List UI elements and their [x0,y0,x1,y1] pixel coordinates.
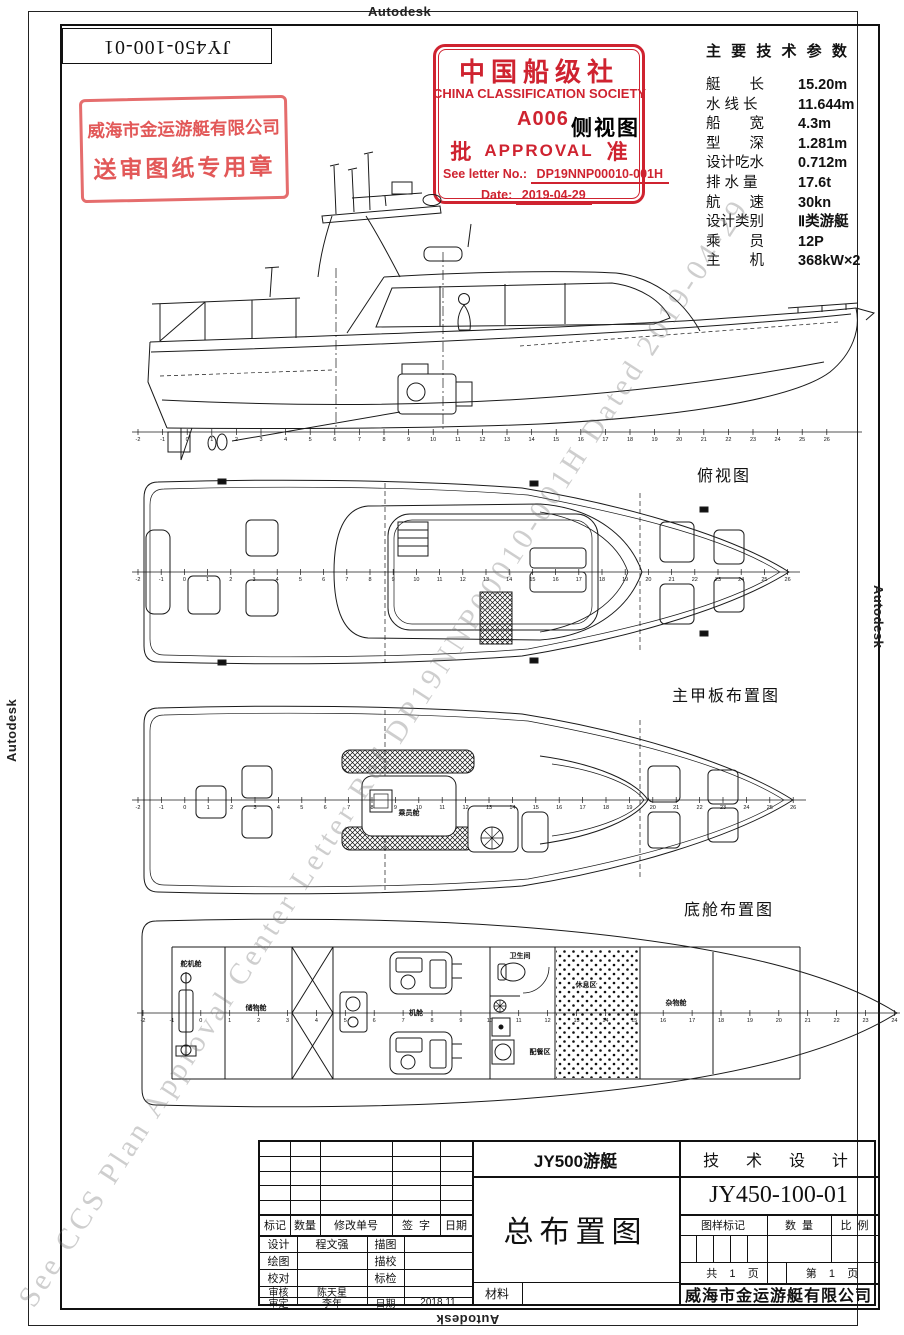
svg-text:11: 11 [455,437,461,443]
svg-text:13: 13 [483,577,489,583]
svg-text:3: 3 [286,1018,289,1024]
role-trace-check: 描校 [367,1252,404,1269]
svg-text:6: 6 [322,577,325,583]
trace-check-name [404,1252,472,1269]
trace-name [404,1235,472,1252]
svg-text:-1: -1 [169,1018,174,1024]
svg-text:19: 19 [747,1018,753,1024]
svg-text:11: 11 [516,1018,522,1024]
svg-text:13: 13 [504,437,510,443]
bilge-station-ruler: -2-1012345678910111213141516171819202122… [137,1010,900,1024]
svg-text:10: 10 [413,577,419,583]
svg-text:6: 6 [324,805,327,811]
svg-text:15: 15 [533,805,539,811]
svg-text:3: 3 [252,577,255,583]
svg-text:9: 9 [394,805,397,811]
svg-text:15: 15 [553,437,559,443]
svg-text:7: 7 [402,1018,405,1024]
svg-text:10: 10 [430,437,436,443]
svg-text:24: 24 [743,805,749,811]
svg-text:11: 11 [437,577,443,583]
qty-col-header: 数 量 [767,1214,831,1235]
svg-text:17: 17 [576,577,582,583]
svg-text:25: 25 [767,805,773,811]
svg-text:-2: -2 [136,577,141,583]
svg-text:3: 3 [253,805,256,811]
svg-text:15: 15 [529,577,535,583]
project-name: JY500游艇 [472,1142,679,1176]
svg-text:12: 12 [545,1018,551,1024]
drawing-sheet: Autodesk Autodesk Autodesk Autodesk JY45… [0,0,904,1335]
svg-text:17: 17 [602,437,608,443]
svg-text:3: 3 [259,437,262,443]
svg-text:14: 14 [509,805,515,811]
role-design: 设计 [260,1235,297,1252]
svg-text:11: 11 [439,805,445,811]
drawing-title: 总布置图 [472,1176,679,1282]
svg-text:7: 7 [358,437,361,443]
top-view-drawing: -2-1012345678910111213141516171819202122… [132,479,800,665]
bilge-storage-label: 储物舱 [245,1003,268,1012]
svg-text:8: 8 [382,437,385,443]
svg-text:5: 5 [300,805,303,811]
svg-text:14: 14 [506,577,512,583]
svg-text:-2: -2 [136,437,141,443]
svg-text:25: 25 [799,437,805,443]
svg-text:16: 16 [578,437,584,443]
svg-text:7: 7 [347,805,350,811]
proofread-name [297,1269,367,1286]
svg-text:23: 23 [715,577,721,583]
svg-text:10: 10 [416,805,422,811]
svg-text:8: 8 [430,1018,433,1024]
svg-text:4: 4 [284,437,287,443]
svg-text:7: 7 [345,577,348,583]
svg-text:14: 14 [602,1018,608,1024]
svg-text:14: 14 [529,437,535,443]
svg-text:19: 19 [652,437,658,443]
svg-text:24: 24 [738,577,744,583]
svg-text:24: 24 [775,437,781,443]
designer-name: 程文强 [297,1235,367,1252]
bilge-view-drawing: 舵机舱 储物舱 机舱 卫生间 休息区 配餐区 杂物舱 -2-1012345678… [137,919,900,1107]
design-stage: 技 术 设 计 [679,1142,878,1176]
svg-text:26: 26 [785,577,791,583]
draw-name [297,1252,367,1269]
svg-text:9: 9 [407,437,410,443]
svg-text:22: 22 [834,1018,840,1024]
mark-col-header: 图样标记 [679,1214,767,1235]
company-name: 威海市金运游艇有限公司 [679,1283,878,1304]
standard-check-name [404,1269,472,1286]
svg-text:17: 17 [689,1018,695,1024]
svg-text:2: 2 [257,1018,260,1024]
svg-text:16: 16 [556,805,562,811]
svg-text:21: 21 [701,437,707,443]
svg-text:19: 19 [622,577,628,583]
svg-text:18: 18 [599,577,605,583]
svg-text:0: 0 [199,1018,202,1024]
date-label: 日期 [367,1297,404,1308]
svg-text:8: 8 [368,577,371,583]
svg-text:21: 21 [673,805,679,811]
svg-text:20: 20 [776,1018,782,1024]
role-trace: 描图 [367,1235,404,1252]
svg-text:9: 9 [459,1018,462,1024]
svg-text:15: 15 [631,1018,637,1024]
material-label: 材料 [472,1282,522,1304]
svg-text:0: 0 [183,577,186,583]
svg-text:17: 17 [580,805,586,811]
svg-text:0: 0 [183,805,186,811]
svg-text:23: 23 [862,1018,868,1024]
svg-text:4: 4 [315,1018,318,1024]
top-view-station-ruler: -2-1012345678910111213141516171819202122… [132,569,800,583]
svg-text:18: 18 [718,1018,724,1024]
svg-text:-1: -1 [159,805,164,811]
bilge-misc-label: 杂物舱 [666,998,688,1007]
svg-text:4: 4 [277,805,280,811]
svg-text:22: 22 [697,805,703,811]
bilge-engine-room-label: 机舱 [409,1008,424,1017]
rev-col-mark: 标记 [260,1214,290,1235]
page-number: 第 1 页 [786,1262,878,1283]
title-block: 标记 数量 修改单号 签 字 日期 设计 程文强 描图 绘图 描校 校对 标检 … [258,1140,876,1306]
svg-text:6: 6 [333,437,336,443]
svg-text:5: 5 [299,577,302,583]
svg-text:10: 10 [487,1018,493,1024]
svg-text:16: 16 [660,1018,666,1024]
svg-text:16: 16 [553,577,559,583]
approver-name: 李年 [297,1297,367,1308]
svg-text:18: 18 [627,437,633,443]
svg-text:21: 21 [805,1018,811,1024]
svg-text:4: 4 [276,577,279,583]
svg-text:24: 24 [891,1018,897,1024]
svg-text:20: 20 [645,577,651,583]
svg-text:26: 26 [790,805,796,811]
svg-text:9: 9 [392,577,395,583]
main-deck-drawing: 乘员舱 -2-101234567891011121314151617181920… [132,706,806,894]
reviewer-name: 陈天星 [297,1286,367,1297]
role-standard-check: 标检 [367,1269,404,1286]
drawing-number: JY450-100-01 [679,1176,878,1214]
svg-text:21: 21 [669,577,675,583]
rev-col-date: 日期 [440,1214,472,1235]
side-view-drawing: -2-1012345678910111213141516171819202122… [132,152,874,460]
pages-total: 共 1 页 [679,1262,786,1283]
svg-text:22: 22 [692,577,698,583]
svg-text:-2: -2 [136,805,141,811]
svg-text:0: 0 [186,437,189,443]
svg-text:6: 6 [373,1018,376,1024]
svg-text:1: 1 [210,437,213,443]
svg-text:13: 13 [573,1018,579,1024]
svg-text:18: 18 [603,805,609,811]
svg-text:25: 25 [761,577,767,583]
svg-text:1: 1 [207,805,210,811]
svg-text:12: 12 [463,805,469,811]
svg-text:26: 26 [824,437,830,443]
svg-text:8: 8 [370,805,373,811]
svg-text:5: 5 [344,1018,347,1024]
boat-drawings-layer: -2-1012345678910111213141516171819202122… [0,0,904,1335]
date-value: 2018.11 [404,1297,472,1308]
svg-text:1: 1 [228,1018,231,1024]
svg-text:2: 2 [229,577,232,583]
rev-col-qty: 数量 [290,1214,320,1235]
role-approve: 审定 [260,1297,297,1308]
side-view-station-ruler: -2-1012345678910111213141516171819202122… [132,429,862,443]
svg-text:5: 5 [309,437,312,443]
svg-text:1: 1 [206,577,209,583]
svg-text:2: 2 [235,437,238,443]
role-review: 审核 [260,1286,297,1297]
svg-text:2: 2 [230,805,233,811]
svg-text:23: 23 [720,805,726,811]
svg-text:22: 22 [725,437,731,443]
bilge-steering-label: 舵机舱 [181,959,203,968]
svg-text:19: 19 [626,805,632,811]
svg-text:23: 23 [750,437,756,443]
svg-text:-1: -1 [159,577,164,583]
role-draw: 绘图 [260,1252,297,1269]
svg-text:13: 13 [486,805,492,811]
bilge-rest-label: 休息区 [575,980,597,989]
svg-text:12: 12 [479,437,485,443]
svg-text:-1: -1 [160,437,165,443]
svg-text:-2: -2 [141,1018,146,1024]
svg-text:20: 20 [650,805,656,811]
svg-text:20: 20 [676,437,682,443]
scale-col-header: 比 例 [831,1214,878,1235]
rev-col-change-no: 修改单号 [320,1214,392,1235]
rev-col-signature: 签 字 [392,1214,440,1235]
bilge-toilet-label: 卫生间 [510,951,531,960]
svg-text:12: 12 [460,577,466,583]
bilge-galley-label: 配餐区 [530,1047,551,1056]
role-proofread: 校对 [260,1269,297,1286]
